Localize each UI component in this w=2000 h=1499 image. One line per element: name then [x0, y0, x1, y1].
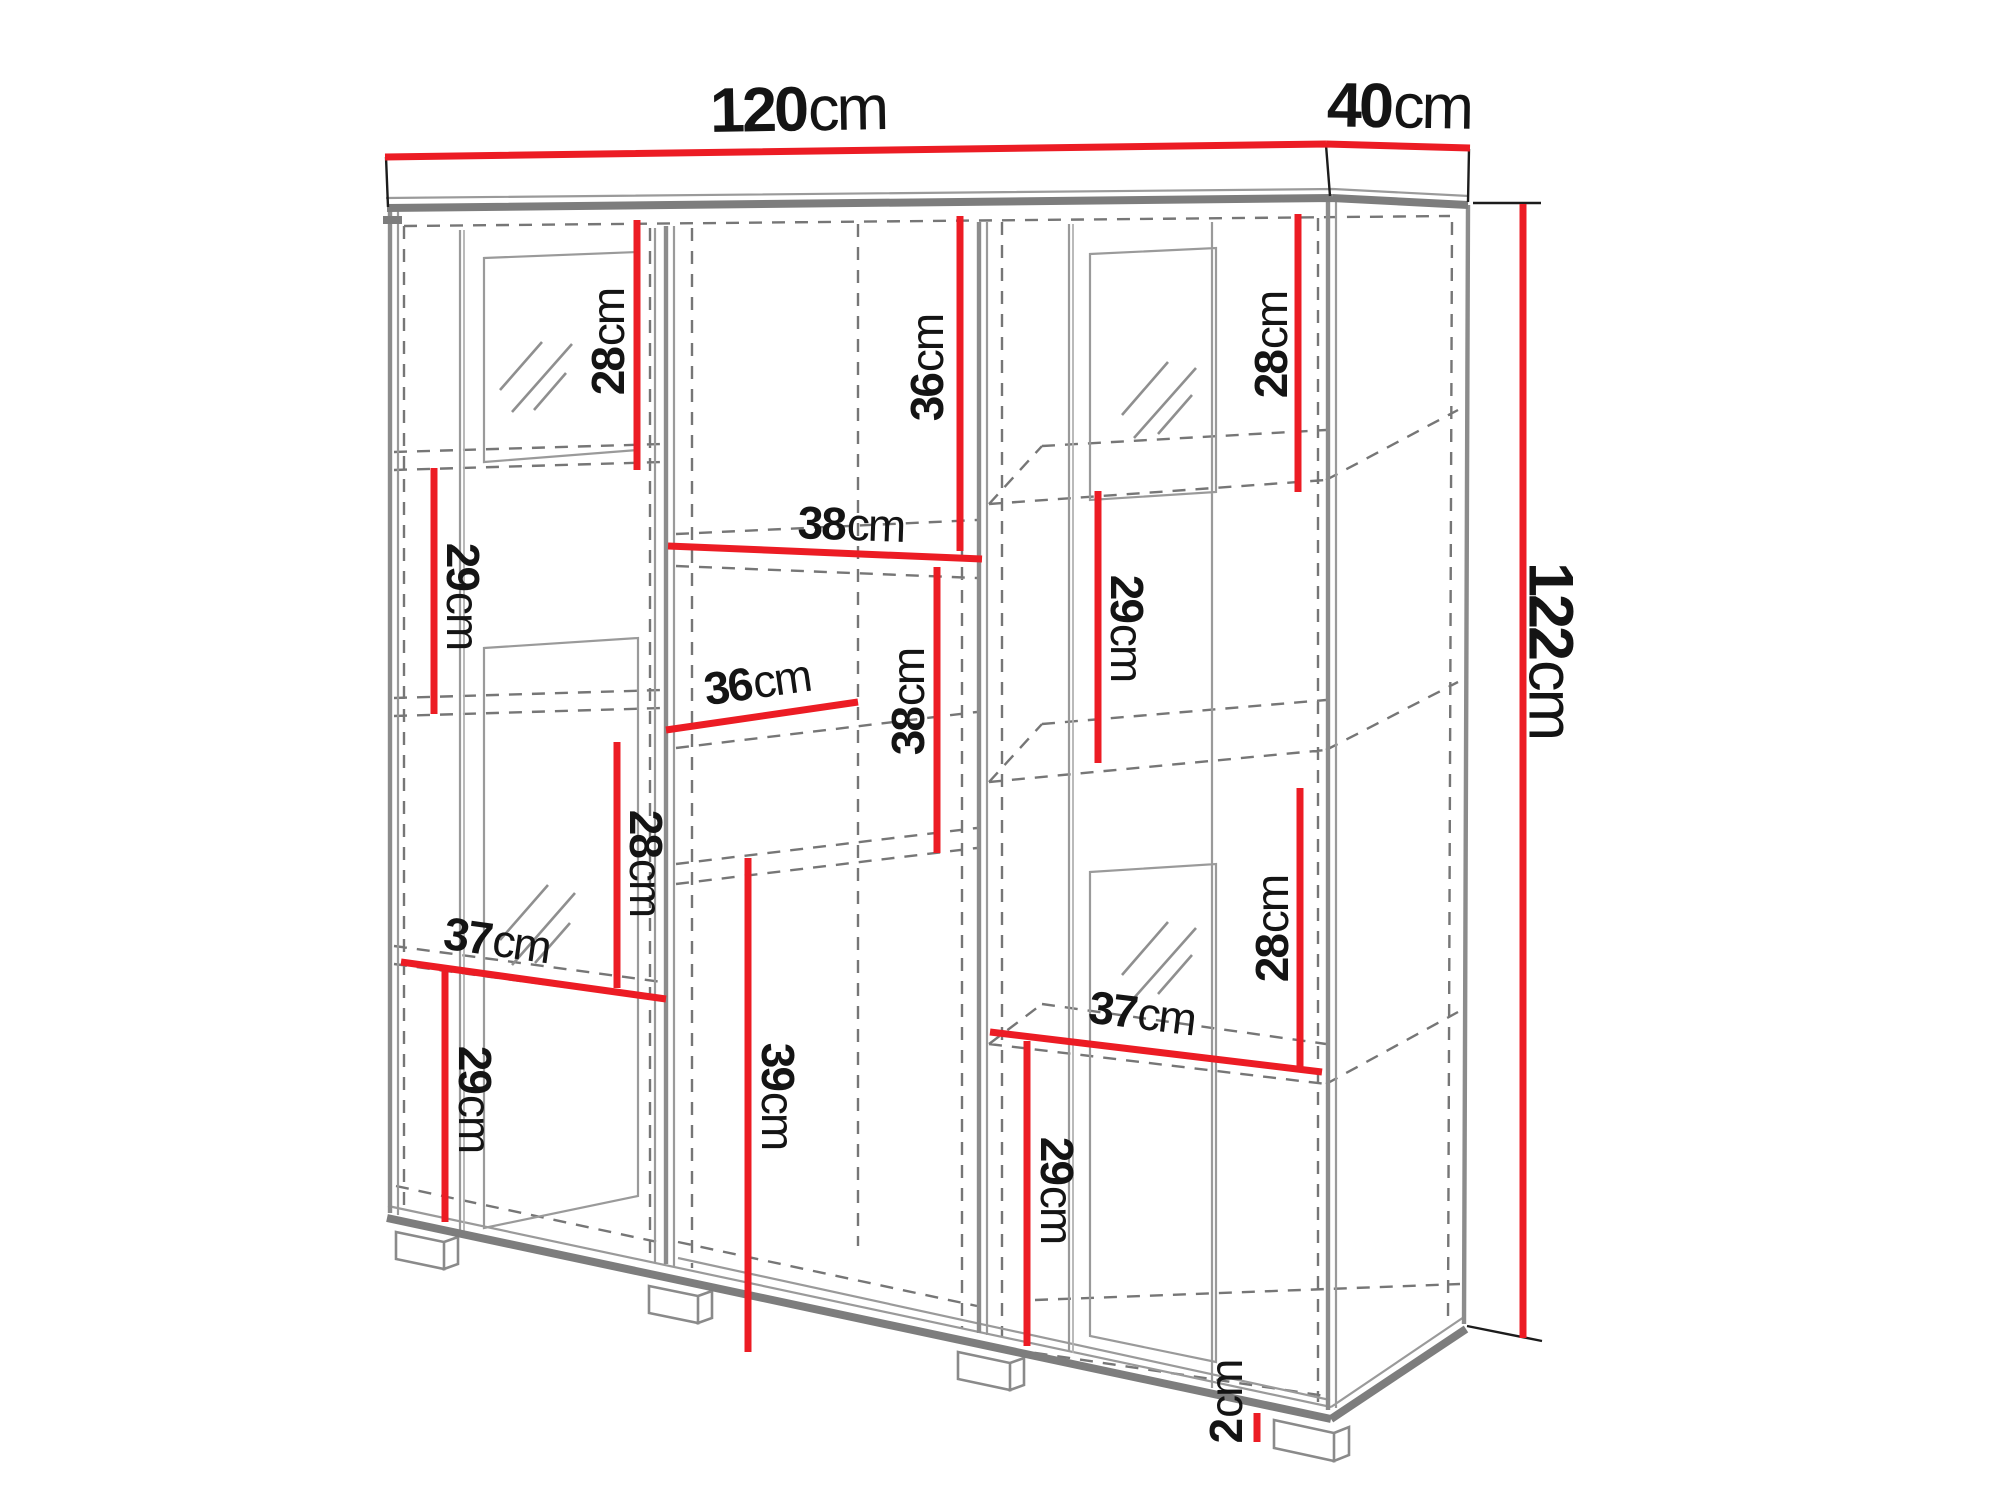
dim-label-right-mid-29: 29cm	[1104, 575, 1150, 682]
dim-label-right-shelf-37: 37cm	[1086, 984, 1197, 1043]
dim-label-middle-top-36: 36cm	[904, 315, 950, 422]
dim-label-left-bottom-29: 29cm	[452, 1046, 498, 1153]
dim-label-left-28: 28cm	[623, 810, 669, 917]
dim-label-right-top-28: 28cm	[1248, 292, 1294, 399]
dim-label-left-top-28: 28cm	[585, 289, 631, 396]
dim-label-height: 122cm	[1519, 562, 1582, 738]
dimension-ticks	[386, 145, 1542, 1341]
dim-label-middle-shelf-38: 38cm	[797, 499, 905, 549]
dim-label-width: 120cm	[709, 77, 886, 143]
glass-shine-marks	[500, 342, 1196, 998]
dim-label-right-bottom-29: 29cm	[1034, 1137, 1080, 1244]
dim-label-middle-38: 38cm	[885, 649, 931, 756]
dim-label-left-mid-29: 29cm	[440, 543, 486, 650]
dim-label-depth: 40cm	[1326, 74, 1471, 140]
dim-label-middle-bottom-39: 39cm	[755, 1043, 801, 1150]
door-inner-lines	[464, 224, 1073, 1353]
red-dimension-lines	[385, 144, 1523, 1442]
cabinet-line-art	[0, 0, 2000, 1499]
dim-label-foot-height: 2cm	[1203, 1361, 1249, 1444]
cabinet-diagram: 120cm 40cm 122cm 2cm 28cm 36cm 28cm 29cm…	[0, 0, 2000, 1499]
dim-label-right-28: 28cm	[1249, 876, 1295, 983]
